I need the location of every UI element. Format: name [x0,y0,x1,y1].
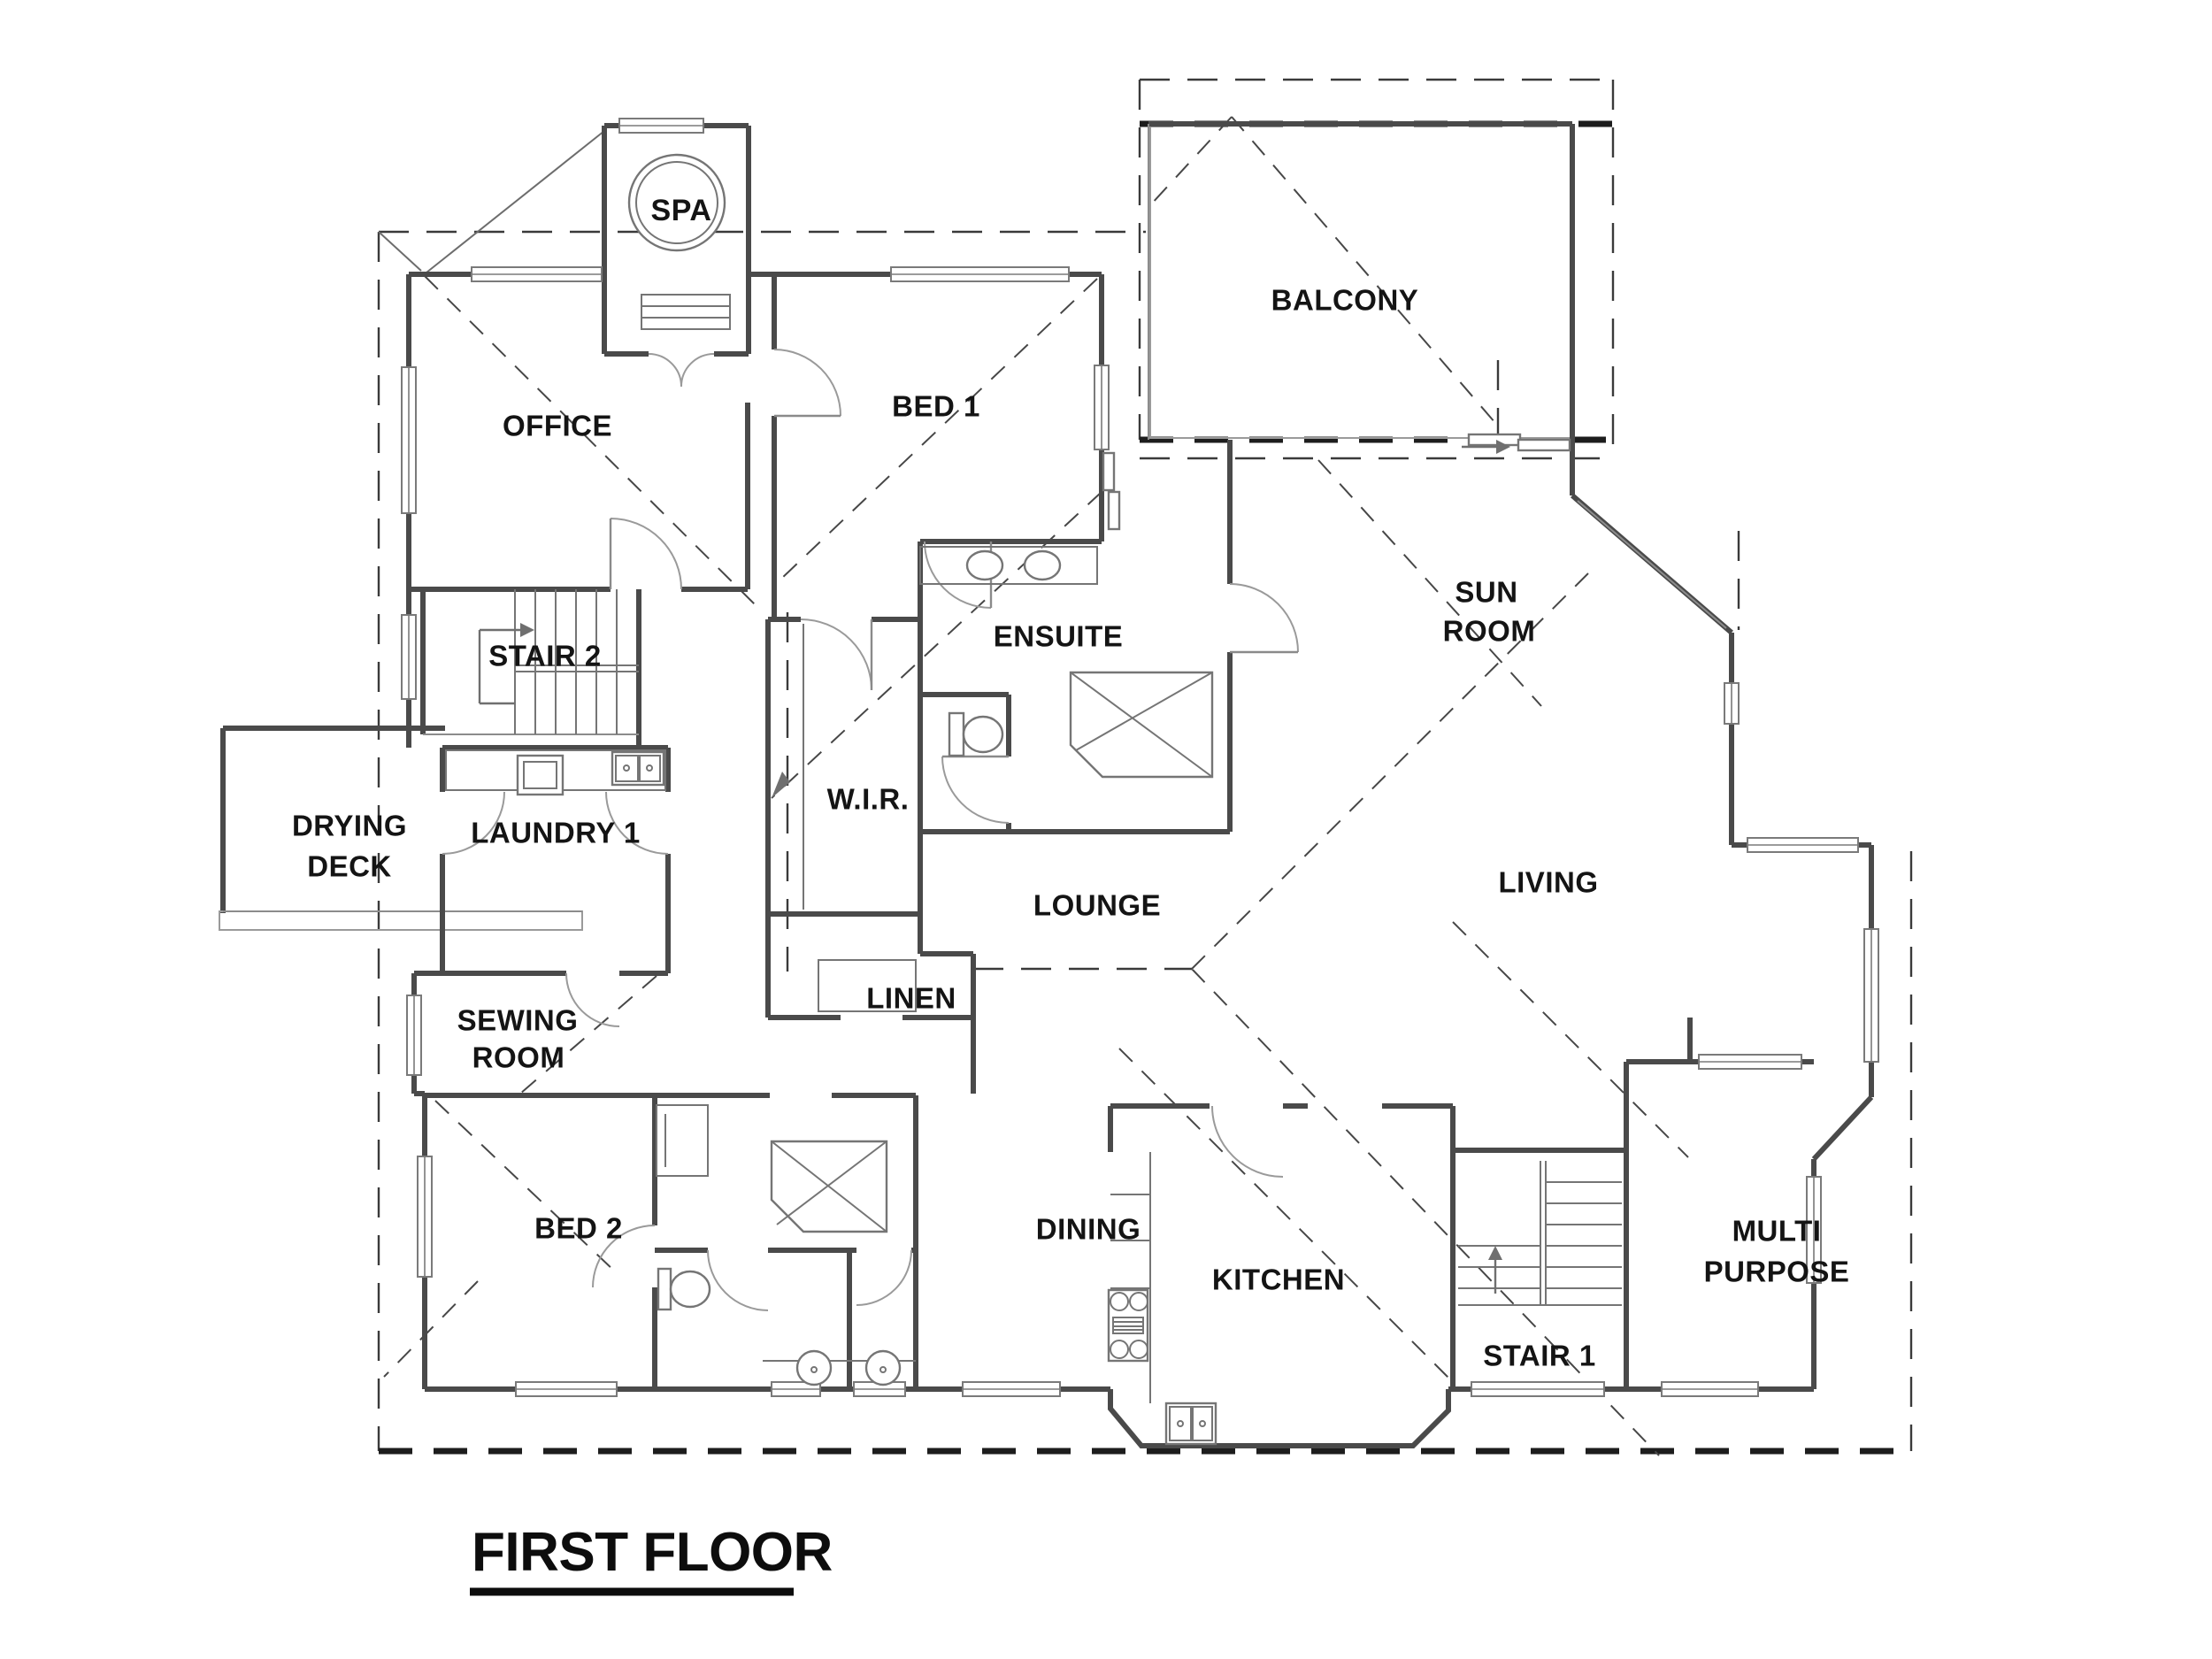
shower-icon [772,1141,887,1232]
window [963,1382,1060,1396]
floor-plan-page: SPA OFFICE BED 1 BALCONY ENSUITE SUN ROO… [0,0,2212,1659]
shower-icon [1071,672,1212,777]
room-label-drying-deck-1: DRYING [292,810,407,842]
window [1864,929,1878,1062]
room-label-spa: SPA [651,194,712,227]
room-label-dining: DINING [1036,1213,1141,1246]
window [1471,1382,1604,1396]
window [402,615,416,699]
window [1094,365,1109,449]
bed1-balcony-slider [1103,453,1114,490]
toilet-icon [658,1269,710,1310]
room-label-drying-deck-2: DECK [307,850,392,883]
room-label-sunroom-1: SUN [1455,576,1517,609]
room-label-ensuite: ENSUITE [994,620,1124,653]
kitchen-fixtures [1109,1152,1216,1444]
room-label-kitchen: KITCHEN [1212,1263,1345,1296]
window [1724,683,1739,724]
cooktop-icon [1109,1290,1148,1361]
room-label-bed1: BED 1 [892,390,980,423]
room-label-sewing-2: ROOM [472,1041,565,1074]
floor-edge-dashed [379,124,1911,1451]
window [516,1382,617,1396]
room-label-stair2: STAIR 2 [488,640,602,672]
wir-door [801,619,872,690]
room-label-living: LIVING [1498,866,1598,899]
room-label-wir: W.I.R. [827,783,910,816]
double-sink-icon [612,752,664,785]
fixtures [446,155,1622,1444]
laundry-bench [446,750,665,795]
window [619,119,703,133]
pantry-door [1212,1106,1283,1177]
office-door [611,518,681,589]
spa-tub-icon [629,155,730,329]
room-label-bed2: BED 2 [534,1212,623,1245]
bathroom-door [708,1250,768,1310]
vanity-bench [920,547,1097,584]
toilet-icon [949,713,1002,756]
basin-icon [1025,551,1060,580]
ensuite-fixtures [920,547,1212,777]
ensuite-wc-door [942,757,1009,823]
room-label-office: OFFICE [503,410,612,442]
room-label-linen: LINEN [866,982,956,1015]
window [1662,1382,1758,1396]
window [402,367,416,513]
sunroom-door [1230,584,1298,652]
room-label-laundry1: LAUNDRY 1 [471,817,641,849]
room-label-stair1: STAIR 1 [1483,1340,1596,1372]
window [1699,1055,1801,1069]
window [1747,838,1858,852]
balcony-slider [1518,440,1570,450]
basin-icon [967,551,1002,580]
powder-door [856,1250,911,1305]
room-label-multipurpose-1: MULTI [1732,1215,1822,1248]
bed1-door [774,349,841,416]
room-label-balcony: BALCONY [1271,284,1419,317]
room-label-multipurpose-2: PURPOSE [1704,1256,1850,1288]
window [418,1156,432,1277]
window [891,267,1069,281]
bed2-closet [657,1105,708,1176]
page-title: FIRST FLOOR [472,1522,833,1583]
window [407,995,421,1075]
balcony-decking [1148,124,1572,440]
spa-double-door [649,354,714,387]
room-label-sewing-1: SEWING [457,1004,579,1037]
title-block: FIRST FLOOR [470,1522,833,1592]
room-label-lounge: LOUNGE [1033,889,1161,922]
window [472,267,602,281]
room-label-sunroom-2: ROOM [1443,615,1536,648]
bathroom-fixtures [658,1141,916,1385]
kitchen-sink-icon [1166,1403,1216,1444]
stair1-treads-icon [1458,1161,1622,1305]
bed1-balcony-slider [1109,492,1119,529]
floor-plan-svg: SPA OFFICE BED 1 BALCONY ENSUITE SUN ROO… [0,0,2212,1659]
balcony-slider [1469,434,1520,445]
